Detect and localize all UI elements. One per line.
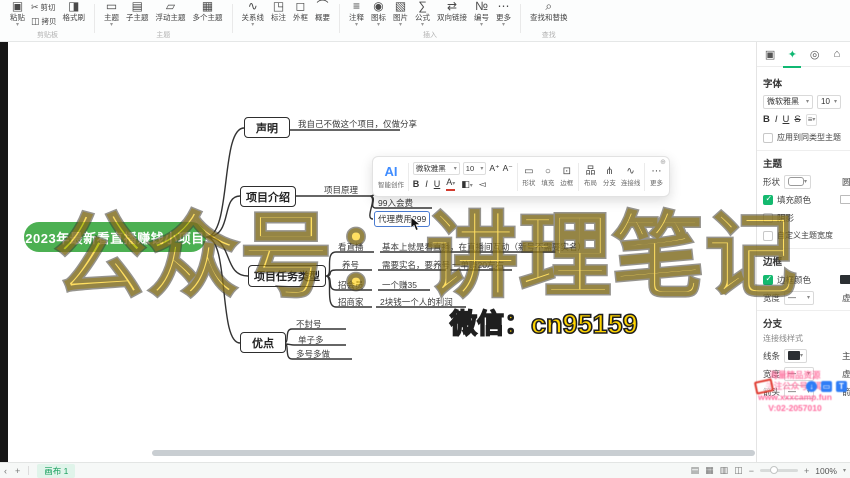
- summary-icon: ⌒: [317, 0, 329, 13]
- more-icon: ⋯: [652, 166, 662, 177]
- leaf-many-orders[interactable]: 单子多: [298, 334, 324, 346]
- zoom-out-button[interactable]: −: [749, 466, 754, 476]
- fill-icon: ○: [545, 166, 551, 177]
- find-replace-icon: ⌕: [545, 0, 552, 13]
- format-painter-icon[interactable]: ◅: [479, 179, 486, 190]
- ribbon-group: ▣粘贴▾✂剪切◫拷贝◨格式刷剪贴板: [2, 0, 93, 41]
- subtopic-button[interactable]: ▤子主题: [123, 0, 152, 22]
- connector-button[interactable]: ∿ 连接线: [621, 166, 641, 187]
- topic-icon: ▭: [106, 0, 117, 13]
- font-size-select[interactable]: 10▾: [463, 162, 487, 175]
- ribbon-group: ≡注释▾◉图标▾▧图片▾∑公式▾⇄双向链接№编号▾⋯更多▾插入: [341, 0, 519, 41]
- sidebar-strike-button[interactable]: S: [794, 114, 800, 125]
- theme-section-title: 主题: [763, 156, 844, 170]
- leaf-watch-live-detail[interactable]: 基本上就是看直播，在直播间互动（新号不需要实名）: [382, 241, 586, 253]
- style-sidebar: ▣ ✦ ◎ ⌂ 字体 微软雅黑▾ 10▾ B I U S ≡▾ 应用到同类型主题…: [756, 42, 850, 462]
- mindmap-canvas[interactable]: 2023年最新看直播赚钱小项目 声明 我自己不做这个项目，仅做分享 项目介绍 项…: [0, 0, 850, 478]
- custom-width-checkbox[interactable]: 自定义主题宽度: [763, 229, 844, 242]
- shape-icon: ▭: [524, 166, 533, 177]
- checkbox-checked-icon[interactable]: [763, 195, 773, 205]
- sidebar-font-size-select[interactable]: 10▾: [817, 95, 841, 109]
- floating-topic-button[interactable]: ▱浮动主题: [153, 0, 189, 22]
- more-insert-icon: ⋯: [498, 0, 510, 13]
- paste-button[interactable]: ▣粘贴▾: [7, 0, 28, 28]
- checkbox-checked-icon[interactable]: [763, 275, 773, 285]
- marker-icon: ◉: [373, 0, 383, 13]
- leaf-raise-account[interactable]: 养号: [342, 259, 359, 271]
- font-family-select[interactable]: 微软雅黑▾: [413, 162, 460, 175]
- increase-font-button[interactable]: A⁺: [489, 163, 499, 174]
- letterbox-strip: [0, 42, 8, 462]
- layout-icon: 品: [585, 166, 595, 177]
- bidirectional-link-button[interactable]: ⇄双向链接: [434, 0, 470, 22]
- ribbon-group: ▭主题▾▤子主题▱浮动主题▦多个主题主题: [96, 0, 231, 41]
- sidebar-underline-button[interactable]: U: [783, 114, 790, 125]
- branch-button[interactable]: ⋔ 分支: [602, 166, 617, 187]
- leaf-recruit-members[interactable]: 招会员: [338, 279, 364, 291]
- border-color-swatch[interactable]: [840, 275, 850, 284]
- connector-icon: ∿: [626, 166, 634, 177]
- sidebar-font-family-select[interactable]: 微软雅黑▾: [763, 95, 813, 109]
- bold-button[interactable]: B: [413, 179, 420, 189]
- fill-button[interactable]: ○ 填充: [540, 166, 555, 187]
- checkbox-icon[interactable]: [763, 213, 773, 223]
- leaf-recruit-members-detail[interactable]: 一个赚35: [382, 279, 417, 291]
- summary-button[interactable]: ⌒概要: [312, 0, 333, 22]
- note-button[interactable]: ≡注释▾: [346, 0, 367, 28]
- callout-icon: ◳: [273, 0, 284, 13]
- font-color-button[interactable]: A▾: [446, 177, 455, 191]
- align-select[interactable]: ≡▾: [806, 114, 818, 126]
- italic-button[interactable]: I: [425, 179, 428, 189]
- fullscreen-icon[interactable]: ◫: [734, 465, 743, 476]
- fill-color-checkbox[interactable]: 填充颜色: [763, 193, 844, 206]
- sheet-tab[interactable]: 画布 1: [37, 464, 75, 478]
- arrow-end-label: 箭头: [842, 386, 850, 398]
- checkbox-icon[interactable]: [763, 231, 773, 241]
- zoom-caret-icon[interactable]: ▾: [843, 467, 846, 474]
- more-insert-button[interactable]: ⋯更多▾: [493, 0, 514, 28]
- horizontal-scrollbar[interactable]: [152, 450, 755, 456]
- find-replace-button[interactable]: ⌕查找和替换: [527, 0, 571, 22]
- formula-icon: ∑: [418, 0, 427, 13]
- image-button[interactable]: ▧图片▾: [390, 0, 411, 28]
- border-width-select[interactable]: —▾: [784, 291, 814, 305]
- mouse-cursor: [410, 216, 422, 232]
- zoom-level[interactable]: 100%: [815, 466, 837, 476]
- leaf-project-principle[interactable]: 项目原理: [324, 184, 358, 196]
- leaf-no-ban[interactable]: 不封号: [296, 318, 322, 330]
- ribbon-group: ∿关系线▾◳标注◻外框⌒概要: [234, 0, 339, 41]
- ribbon-group: ⌕查找和替换查找: [522, 0, 576, 41]
- border-section-title: 边框: [763, 254, 844, 268]
- branch-dash-label: 虚线: [842, 368, 850, 380]
- leaf-recruit-merchants[interactable]: 招商家: [338, 296, 364, 308]
- fit-view-icon[interactable]: ▥: [720, 465, 729, 476]
- theme-tab-icon[interactable]: ◎: [806, 48, 824, 61]
- leaf-statement-detail[interactable]: 我自己不做这个项目，仅做分享: [298, 118, 417, 130]
- line-color-select[interactable]: ▾: [784, 349, 807, 363]
- canvas-tab-icon[interactable]: ▣: [761, 48, 779, 61]
- format-painter-button[interactable]: ◨格式刷: [60, 0, 89, 22]
- sidebar-italic-button[interactable]: I: [775, 114, 778, 125]
- ribbon-group-label: 插入: [341, 30, 519, 40]
- leaf-watch-live[interactable]: 看直播: [338, 241, 364, 253]
- topic-advantages[interactable]: 优点: [240, 332, 286, 353]
- fill-swatch[interactable]: [840, 195, 850, 204]
- trunk-label: 主题: [842, 350, 850, 362]
- branch-section-title: 分支: [763, 316, 844, 330]
- topic-project-intro[interactable]: 项目介绍: [240, 186, 296, 207]
- leaf-raise-account-detail[interactable]: 需要实名，要养号: [382, 259, 450, 271]
- ai-create-button[interactable]: AI 智能创作: [378, 165, 404, 189]
- ribbon-group-label: 主题: [96, 30, 231, 40]
- paste-icon: ▣: [12, 0, 23, 13]
- marker-button[interactable]: ◉图标▾: [368, 0, 389, 28]
- format-painter-icon: ◨: [68, 0, 79, 13]
- zoom-slider-knob[interactable]: [770, 466, 778, 474]
- topic-statement[interactable]: 声明: [244, 117, 290, 138]
- border-button[interactable]: ⊡ 边框: [559, 166, 574, 187]
- copy-icon: ◫: [31, 16, 40, 27]
- status-bar: ‹ + 画布 1 ▤ ▦ ▥ ◫ − + 100% ▾: [0, 462, 850, 478]
- ribbon: ▣粘贴▾✂剪切◫拷贝◨格式刷剪贴板▭主题▾▤子主题▱浮动主题▦多个主题主题∿关系…: [0, 0, 850, 42]
- ai-icon: AI: [385, 165, 398, 179]
- arrow-select[interactable]: —▾: [784, 385, 814, 399]
- layout-button[interactable]: 品 布局: [583, 166, 598, 187]
- underline-button[interactable]: U: [434, 179, 441, 189]
- relationship-line-icon: ∿: [248, 0, 258, 13]
- collapse-icon[interactable]: ‹: [4, 466, 7, 476]
- leaf-multi-accounts[interactable]: 多号多做: [296, 348, 330, 360]
- boundary-button[interactable]: ◻外框: [290, 0, 311, 22]
- image-icon: ▧: [395, 0, 406, 13]
- leaf-earn-per-order[interactable]: 一单赚20左右: [452, 259, 504, 271]
- connector-style-label: 连接线样式: [763, 333, 844, 344]
- style-tab-icon[interactable]: ✦: [783, 48, 801, 61]
- numbering-icon: №: [475, 0, 488, 13]
- font-section-title: 字体: [763, 76, 844, 90]
- central-topic[interactable]: 2023年最新看直播赚钱小项目: [24, 222, 206, 252]
- structure-tab-icon[interactable]: ⌂: [828, 48, 846, 60]
- boundary-icon: ◻: [296, 0, 306, 13]
- floating-toolbar: AI 智能创作 微软雅黑▾ 10▾ A⁺ A⁻ B I U A▾ ◧▾ ◅: [372, 156, 670, 197]
- sidebar-bold-button[interactable]: B: [763, 114, 770, 125]
- zoom-slider[interactable]: [760, 469, 798, 472]
- leaf-membership-fee[interactable]: 99入会费: [378, 197, 413, 209]
- branch-icon: ⋔: [605, 166, 613, 177]
- leaf-recruit-merchants-detail[interactable]: 2块钱一个人的利润: [380, 296, 453, 308]
- pin-icon[interactable]: ⊕: [660, 158, 666, 166]
- zoom-in-button[interactable]: +: [804, 466, 809, 476]
- copy-button[interactable]: ◫拷贝: [29, 15, 59, 27]
- formula-button[interactable]: ∑公式▾: [412, 0, 433, 28]
- ribbon-group-label: 剪贴板: [2, 30, 93, 40]
- multi-topic-button[interactable]: ▦多个主题: [190, 0, 226, 22]
- note-icon: ≡: [353, 0, 360, 13]
- topic-task-types[interactable]: 项目任务类型: [248, 265, 326, 287]
- shadow-checkbox[interactable]: 阴影: [763, 211, 844, 224]
- floating-topic-icon: ▱: [166, 0, 175, 13]
- cut-button[interactable]: ✂剪切: [29, 1, 59, 13]
- dash-label: 虚线: [842, 292, 850, 304]
- grid-view-icon[interactable]: ▦: [705, 465, 714, 476]
- bidirectional-link-icon: ⇄: [447, 0, 457, 13]
- numbering-button[interactable]: №编号▾: [471, 0, 492, 28]
- subtopic-icon: ▤: [132, 0, 143, 13]
- checkbox-icon[interactable]: [763, 133, 773, 143]
- border-icon: ⊡: [563, 166, 571, 177]
- multi-topic-icon: ▦: [202, 0, 213, 13]
- line-width-select[interactable]: —▾: [784, 367, 814, 381]
- apply-same-type-checkbox[interactable]: 应用到同类型主题: [763, 131, 844, 144]
- decrease-font-button[interactable]: A⁻: [503, 163, 513, 174]
- callout-button[interactable]: ◳标注: [268, 0, 289, 22]
- add-sheet-button[interactable]: +: [15, 466, 20, 476]
- topic-button[interactable]: ▭主题▾: [101, 0, 122, 28]
- shape-button[interactable]: ▭ 形状: [521, 166, 536, 187]
- border-color-checkbox[interactable]: 边框颜色: [763, 273, 844, 286]
- relationship-line-button[interactable]: ∿关系线▾: [239, 0, 268, 28]
- more-format-button[interactable]: ⋯ 更多: [649, 166, 664, 187]
- ribbon-group-label: 查找: [522, 30, 576, 40]
- outline-view-icon[interactable]: ▤: [691, 465, 700, 476]
- cut-icon: ✂: [31, 2, 39, 13]
- shape-select[interactable]: ▾: [784, 175, 811, 189]
- corner-label: 圆角: [842, 176, 850, 188]
- highlight-color-button[interactable]: ◧▾: [461, 179, 473, 190]
